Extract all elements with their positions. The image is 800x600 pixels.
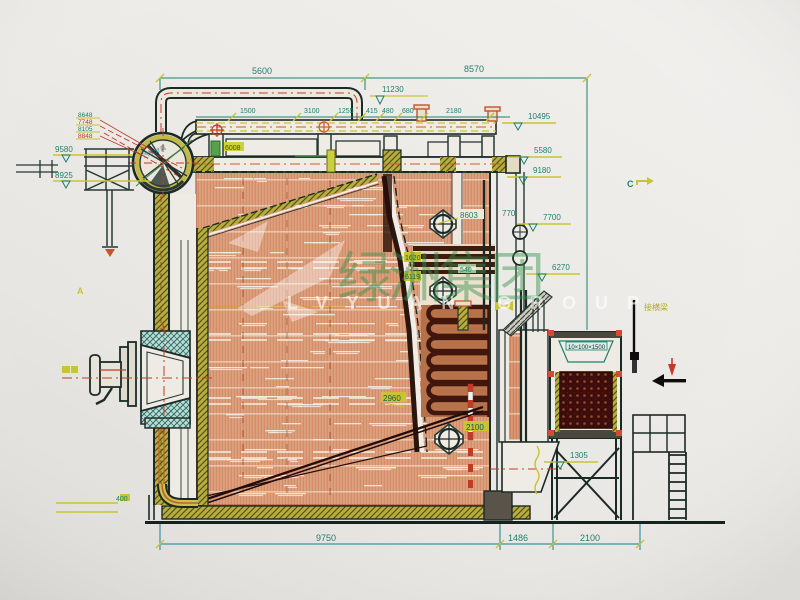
svg-text:7700: 7700: [543, 213, 561, 222]
svg-text:6270: 6270: [552, 263, 570, 272]
svg-text:C: C: [627, 179, 634, 189]
svg-text:1500: 1500: [240, 108, 256, 115]
svg-text:1255: 1255: [338, 108, 354, 115]
svg-text:11230: 11230: [382, 85, 404, 94]
svg-text:9580: 9580: [55, 145, 73, 154]
svg-text:2180: 2180: [446, 108, 462, 115]
svg-text:415: 415: [366, 108, 378, 115]
svg-text:9180: 9180: [533, 166, 551, 175]
svg-text:3100: 3100: [304, 108, 320, 115]
svg-text:A: A: [77, 286, 84, 296]
svg-text:5580: 5580: [534, 146, 552, 155]
svg-text:770: 770: [502, 209, 516, 218]
svg-text:10495: 10495: [528, 112, 551, 121]
svg-text:2960: 2960: [383, 394, 401, 403]
svg-text:400: 400: [116, 496, 128, 503]
svg-text:1305: 1305: [570, 451, 588, 460]
svg-text:9750: 9750: [316, 533, 336, 543]
svg-text:8603: 8603: [460, 211, 478, 220]
svg-text:8570: 8570: [464, 64, 484, 74]
svg-text:2100: 2100: [580, 533, 600, 543]
svg-text:5600: 5600: [252, 66, 272, 76]
svg-text:680: 680: [402, 108, 414, 115]
svg-text:10×100×1500: 10×100×1500: [568, 345, 606, 351]
svg-text:8925: 8925: [55, 171, 73, 180]
svg-text:1486: 1486: [508, 533, 528, 543]
svg-text:接横梁: 接横梁: [644, 302, 668, 312]
svg-text:6008: 6008: [225, 145, 241, 152]
svg-text:2100: 2100: [466, 423, 484, 432]
